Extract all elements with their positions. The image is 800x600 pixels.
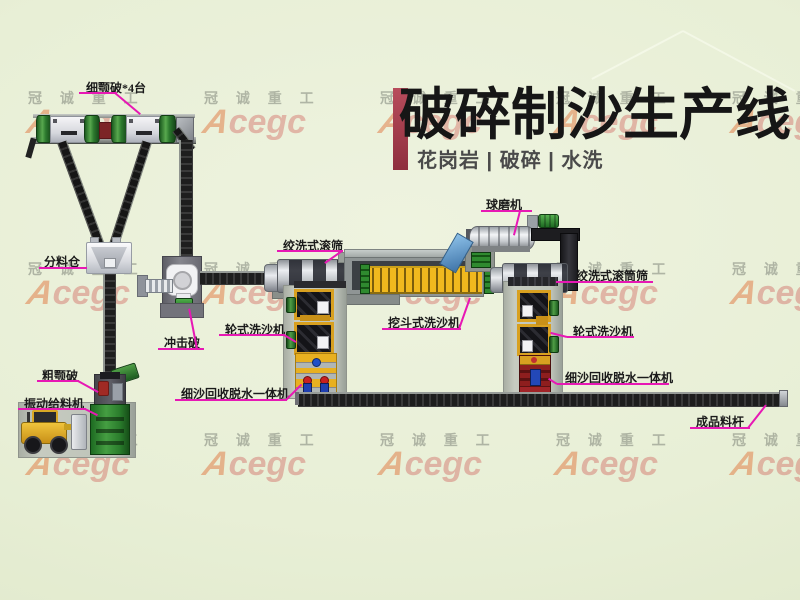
label-underline xyxy=(382,328,461,330)
acegc-logo: Acegc xyxy=(204,450,364,479)
washer-window xyxy=(317,336,329,349)
washer-motor-cylinder xyxy=(549,300,559,316)
housing-slot xyxy=(61,131,77,135)
label-underline xyxy=(567,336,634,338)
distribution-silo xyxy=(86,236,132,274)
washer-connector xyxy=(300,315,330,321)
label-underline xyxy=(556,281,653,283)
mill-motor xyxy=(538,214,559,228)
acegc-logo: Acegc xyxy=(556,450,716,479)
acegc-logo: Acegc xyxy=(380,450,540,479)
crusher-housing xyxy=(126,116,162,143)
fine-sand-recycler-right-machine xyxy=(519,355,551,395)
production-line-diagram: 冠 诚 重 工Acegc 冠 诚 重 工Acegc 冠 诚 重 工Acegc 冠… xyxy=(0,0,800,600)
watermark-company-text: 冠 诚 重 工 xyxy=(204,430,364,450)
bucket-elevator-vertical xyxy=(179,140,193,268)
housing-bolt xyxy=(53,119,57,123)
recycler-top-dot xyxy=(531,357,537,363)
impact-base xyxy=(160,303,204,318)
label-underline xyxy=(277,250,343,252)
label-underline xyxy=(481,210,532,212)
crusher-housing xyxy=(50,116,87,143)
rotor-eye xyxy=(173,271,192,290)
recycler-blue-pump xyxy=(530,369,541,386)
silo-body xyxy=(86,242,132,274)
washer-motor-cylinder xyxy=(549,336,559,353)
acegc-logo: Acegc xyxy=(732,450,800,479)
label-underline xyxy=(79,92,117,94)
jaw-top xyxy=(100,372,120,379)
row-support-leg xyxy=(25,138,36,159)
loader-wheel xyxy=(24,436,42,454)
washer-motor-cylinder xyxy=(286,297,296,313)
washer-gear-left xyxy=(360,264,370,294)
page-subtitle: 花岗岩 | 破碎 | 水洗 xyxy=(417,144,603,173)
feeder-slot xyxy=(96,441,124,445)
label-underline xyxy=(37,380,79,382)
watermark-company-text: 冠 诚 重 工 xyxy=(380,430,540,450)
housing-slot xyxy=(136,131,152,135)
washer-base xyxy=(346,294,400,305)
product-conveyor-head xyxy=(779,390,788,407)
watermark-company-text: 冠 诚 重 工 xyxy=(732,430,800,450)
washer-connector xyxy=(536,316,548,325)
watermark: 冠 诚 重 工Acegc xyxy=(732,430,800,479)
washer-window xyxy=(522,305,533,317)
label-pointer xyxy=(747,405,766,429)
watermark-company-text: 冠 诚 重 工 xyxy=(204,88,364,108)
screw-conveyor xyxy=(137,275,171,296)
label-underline xyxy=(690,427,750,429)
background-pyramid-line xyxy=(591,30,683,80)
watermark: 冠 诚 重 工Acegc xyxy=(556,430,716,479)
watermark: 冠 诚 重 工Acegc xyxy=(204,430,364,479)
conveyor-impact-to-screen xyxy=(200,271,266,285)
label-underline xyxy=(219,334,285,336)
washer-window xyxy=(317,301,329,314)
wheel-loader xyxy=(15,410,89,452)
label-underline xyxy=(175,399,287,401)
label-underline xyxy=(39,267,87,269)
label-underline xyxy=(18,408,86,410)
loader-bucket xyxy=(71,414,87,450)
recycler-valve-blue xyxy=(312,358,321,367)
label-underline xyxy=(557,383,669,385)
product-conveyor xyxy=(298,392,782,407)
recycler-band xyxy=(296,373,336,379)
housing-bolt xyxy=(129,119,133,123)
wheel-washer-right-unit2 xyxy=(517,324,551,356)
washer-window xyxy=(522,340,533,352)
product-conveyor-left-cap xyxy=(295,392,299,405)
watermark: 冠 诚 重 工Acegc xyxy=(204,88,364,137)
watermark: 冠 诚 重 工Acegc xyxy=(732,259,800,308)
acegc-logo: Acegc xyxy=(732,279,800,308)
mill-base xyxy=(472,246,530,252)
left-washer-top-strip xyxy=(294,281,346,288)
fine-sand-recycler-left-machine xyxy=(295,353,337,397)
jaw-flywheel xyxy=(98,381,109,396)
acegc-logo: Acegc xyxy=(204,108,364,137)
loader-wheel xyxy=(50,436,68,454)
watermark-company-text: 冠 诚 重 工 xyxy=(732,259,800,279)
crusher-drum xyxy=(84,115,100,143)
wheel-washer-left-unit2 xyxy=(294,322,334,355)
feeder-slot xyxy=(96,417,124,421)
jaw-side xyxy=(112,383,123,401)
silo-outlet xyxy=(104,258,116,268)
crusher-drum xyxy=(159,115,176,143)
right-washer-top-strip xyxy=(508,277,558,286)
watermark: 冠 诚 重 工Acegc xyxy=(380,430,540,479)
screw-flight xyxy=(145,279,173,293)
watermark-company-text: 冠 诚 重 工 xyxy=(556,430,716,450)
vibrating-feeder-machine xyxy=(90,404,130,455)
page-title: 破碎制沙生产线 xyxy=(399,86,791,145)
feeder-slot xyxy=(96,429,124,433)
